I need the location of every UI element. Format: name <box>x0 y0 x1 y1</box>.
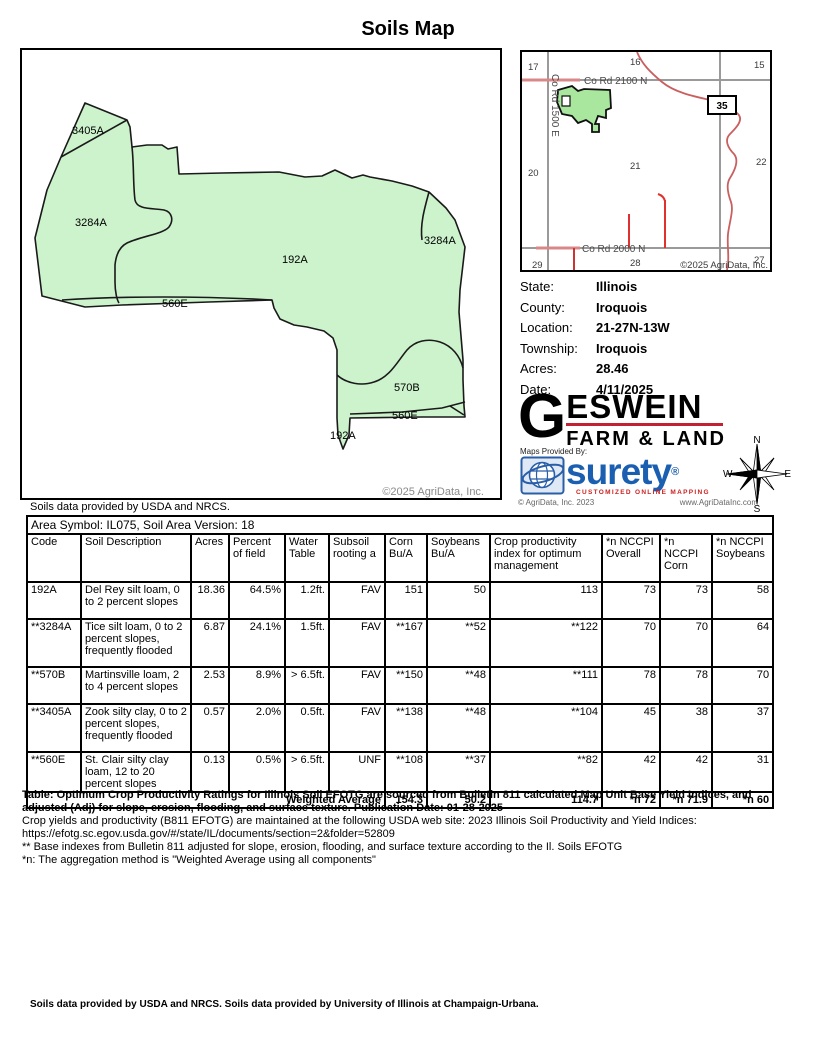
map-label-3405A: 3405A <box>72 125 104 137</box>
agridata-copyright: © AgriData, Inc. 2023 <box>518 498 594 507</box>
table-row: **3405A Zook silty clay, 0 to 2 percent … <box>27 704 773 752</box>
col-header-nccpi-soybeans: *n NCCPI Soybeans <box>712 534 773 582</box>
map-label-192A: 192A <box>282 254 308 266</box>
compass-rose: N S E W <box>722 436 792 517</box>
soils-table-container: Area Symbol: IL075, Soil Area Version: 1… <box>26 515 774 809</box>
info-value: Iroquois <box>596 298 647 319</box>
cell-water: 0.5ft. <box>285 704 329 752</box>
col-header-nccpi-corn: *n NCCPI Corn <box>660 534 712 582</box>
map-label-3284A-left: 3284A <box>75 217 107 229</box>
footnote-base-indexes: ** Base indexes from Bulletin 811 adjust… <box>22 841 796 854</box>
footnote-crop-yields: Crop yields and productivity (B811 EFOTG… <box>22 815 796 828</box>
cell-nccpi-overall: 78 <box>602 667 660 704</box>
inset-copyright: ©2025 AgriData, Inc. <box>680 260 768 270</box>
section-16: 16 <box>630 57 641 68</box>
cell-acres: 2.53 <box>191 667 229 704</box>
cell-desc: Martinsville loam, 2 to 4 percent slopes <box>81 667 191 704</box>
cell-soy: **37 <box>427 752 490 792</box>
section-20: 20 <box>528 168 539 179</box>
info-label: State: <box>520 277 596 298</box>
col-header-soybeans: Soybeans Bu/A <box>427 534 490 582</box>
footnote-source: Table: Optimum Crop Productivity Ratings… <box>22 789 796 815</box>
col-header-nccpi-overall: *n NCCPI Overall <box>602 534 660 582</box>
info-row-state: State: Illinois <box>520 277 770 298</box>
info-value: 21-27N-13W <box>596 318 670 339</box>
cell-subsoil: FAV <box>329 619 385 667</box>
cell-code: **3405A <box>27 704 81 752</box>
cell-acres: 0.13 <box>191 752 229 792</box>
map-label-570B: 570B <box>394 382 420 394</box>
cell-nccpi-soy: 70 <box>712 667 773 704</box>
location-inset-map: 17 16 15 20 21 22 29 28 27 Co Rd 2100 N … <box>520 50 772 272</box>
cell-water: > 6.5ft. <box>285 752 329 792</box>
red-road-middle-stubs <box>629 194 665 248</box>
section-28: 28 <box>630 258 641 269</box>
soils-map-report-page: Soils Map 3405A 3284A 192A 3284A 560E 57… <box>0 0 816 1056</box>
footnote-url: https://efotg.sc.egov.usda.gov/#/state/I… <box>22 828 796 841</box>
map-attribution: Soils data provided by USDA and NRCS. <box>30 501 230 513</box>
page-title: Soils Map <box>0 18 816 41</box>
footnote-aggregation: *n: The aggregation method is "Weighted … <box>22 854 796 867</box>
info-row-location: Location: 21-27N-13W <box>520 318 770 339</box>
cell-nccpi-soy: 64 <box>712 619 773 667</box>
cell-cpi: 113 <box>490 582 602 619</box>
cell-cpi: **104 <box>490 704 602 752</box>
map-label-560E-left: 560E <box>162 298 188 310</box>
cell-acres: 6.87 <box>191 619 229 667</box>
table-row: 192A Del Rey silt loam, 0 to 2 percent s… <box>27 582 773 619</box>
map-label-3284A-right: 3284A <box>424 235 456 247</box>
col-header-crop-productivity: Crop productivity index for optimum mana… <box>490 534 602 582</box>
col-header-subsoil-rooting: Subsoil rooting a <box>329 534 385 582</box>
cell-soy: **52 <box>427 619 490 667</box>
surety-wordmark: surety® <box>566 456 678 488</box>
geswein-logo-name: ESWEIN <box>566 392 726 422</box>
road-label-bottom: Co Rd 2000 N <box>582 244 645 255</box>
cell-nccpi-corn: 78 <box>660 667 712 704</box>
cell-nccpi-overall: 42 <box>602 752 660 792</box>
cell-subsoil: FAV <box>329 667 385 704</box>
inset-map-drawing: 17 16 15 20 21 22 29 28 27 Co Rd 2100 N … <box>522 52 770 270</box>
road-label-left: Co Rd 1500 E <box>549 74 560 137</box>
map-copyright: ©2025 AgriData, Inc. <box>382 486 484 498</box>
col-header-water-table: Water Table <box>285 534 329 582</box>
cell-cpi: **111 <box>490 667 602 704</box>
footnotes-block: Table: Optimum Crop Productivity Ratings… <box>22 789 796 867</box>
cell-nccpi-corn: 42 <box>660 752 712 792</box>
cell-nccpi-overall: 45 <box>602 704 660 752</box>
compass-s: S <box>754 504 761 512</box>
cell-subsoil: FAV <box>329 704 385 752</box>
cell-cpi: **82 <box>490 752 602 792</box>
road-label-top: Co Rd 2100 N <box>584 76 647 87</box>
cell-corn: **150 <box>385 667 427 704</box>
cell-nccpi-overall: 70 <box>602 619 660 667</box>
section-22: 22 <box>756 157 767 168</box>
cell-code: **570B <box>27 667 81 704</box>
cell-water: 1.2ft. <box>285 582 329 619</box>
section-15: 15 <box>754 60 765 71</box>
cell-desc: St. Clair silty clay loam, 12 to 20 perc… <box>81 752 191 792</box>
col-header-corn: Corn Bu/A <box>385 534 427 582</box>
cell-nccpi-soy: 31 <box>712 752 773 792</box>
registered-mark: ® <box>671 466 678 478</box>
cell-pct: 2.0% <box>229 704 285 752</box>
compass-e: E <box>784 469 791 480</box>
cell-nccpi-soy: 58 <box>712 582 773 619</box>
table-header-row: Code Soil Description Acres Percent of f… <box>27 534 773 582</box>
cell-nccpi-corn: 38 <box>660 704 712 752</box>
cell-corn: 151 <box>385 582 427 619</box>
map-label-560E-right: 560E <box>392 410 418 422</box>
section-21: 21 <box>630 161 641 172</box>
cell-code: 192A <box>27 582 81 619</box>
cell-corn: **138 <box>385 704 427 752</box>
info-value: 28.46 <box>596 359 629 380</box>
surety-tagline: CUSTOMIZED ONLINE MAPPING <box>576 489 710 496</box>
cell-pct: 24.1% <box>229 619 285 667</box>
info-label: County: <box>520 298 596 319</box>
cell-corn: **167 <box>385 619 427 667</box>
geswein-logo-g: G <box>518 392 564 442</box>
inset-parcel <box>557 86 611 132</box>
cell-subsoil: UNF <box>329 752 385 792</box>
cell-water: > 6.5ft. <box>285 667 329 704</box>
soils-table: Area Symbol: IL075, Soil Area Version: 1… <box>26 515 774 809</box>
col-header-percent-of-field: Percent of field <box>229 534 285 582</box>
cell-code: **3284A <box>27 619 81 667</box>
col-header-soil-description: Soil Description <box>81 534 191 582</box>
area-symbol-text: Area Symbol: IL075, Soil Area Version: 1… <box>27 516 773 534</box>
geswein-logo-subtitle: FARM & LAND <box>566 428 726 451</box>
area-symbol-row: Area Symbol: IL075, Soil Area Version: 1… <box>27 516 773 534</box>
info-label: Location: <box>520 318 596 339</box>
geswein-logo-right: ESWEIN FARM & LAND <box>566 392 726 451</box>
soils-map-drawing: 3405A 3284A 192A 3284A 560E 570B 560E 19… <box>22 50 500 498</box>
compass-n: N <box>753 436 760 446</box>
cell-cpi: **122 <box>490 619 602 667</box>
section-29: 29 <box>532 260 543 270</box>
cell-desc: Tice silt loam, 0 to 2 percent slopes, f… <box>81 619 191 667</box>
cell-nccpi-corn: 73 <box>660 582 712 619</box>
map-label-192A-finger: 192A <box>330 430 356 442</box>
cell-pct: 64.5% <box>229 582 285 619</box>
cell-subsoil: FAV <box>329 582 385 619</box>
info-row-township: Township: Iroquois <box>520 339 770 360</box>
geswein-logo: G ESWEIN FARM & LAND <box>518 392 726 451</box>
cell-pct: 0.5% <box>229 752 285 792</box>
cell-nccpi-overall: 73 <box>602 582 660 619</box>
highway-badge-number: 35 <box>716 101 728 112</box>
info-row-acres: Acres: 28.46 <box>520 359 770 380</box>
info-value: Illinois <box>596 277 637 298</box>
section-17: 17 <box>528 62 539 73</box>
page-footer: Soils data provided by USDA and NRCS. So… <box>30 999 539 1010</box>
col-header-acres: Acres <box>191 534 229 582</box>
surety-word: surety <box>566 451 671 492</box>
cell-desc: Zook silty clay, 0 to 2 percent slopes, … <box>81 704 191 752</box>
red-road-curvy <box>637 52 740 270</box>
parcel-polygon <box>35 103 465 449</box>
cell-water: 1.5ft. <box>285 619 329 667</box>
info-label: Acres: <box>520 359 596 380</box>
soils-map-panel: 3405A 3284A 192A 3284A 560E 570B 560E 19… <box>20 48 502 500</box>
cell-nccpi-corn: 70 <box>660 619 712 667</box>
globe-icon <box>520 456 566 496</box>
info-row-county: County: Iroquois <box>520 298 770 319</box>
cell-acres: 0.57 <box>191 704 229 752</box>
table-row: **570B Martinsville loam, 2 to 4 percent… <box>27 667 773 704</box>
cell-acres: 18.36 <box>191 582 229 619</box>
col-header-code: Code <box>27 534 81 582</box>
inset-parcel-notch <box>562 96 570 106</box>
cell-soy: **48 <box>427 667 490 704</box>
cell-corn: **108 <box>385 752 427 792</box>
info-label: Township: <box>520 339 596 360</box>
cell-soy: 50 <box>427 582 490 619</box>
cell-nccpi-soy: 37 <box>712 704 773 752</box>
info-value: Iroquois <box>596 339 647 360</box>
table-row: **560E St. Clair silty clay loam, 12 to … <box>27 752 773 792</box>
cell-code: **560E <box>27 752 81 792</box>
table-row: **3284A Tice silt loam, 0 to 2 percent s… <box>27 619 773 667</box>
cell-pct: 8.9% <box>229 667 285 704</box>
compass-w: W <box>723 469 733 480</box>
cell-soy: **48 <box>427 704 490 752</box>
compass-rose-icon: N S E W <box>722 436 792 512</box>
cell-desc: Del Rey silt loam, 0 to 2 percent slopes <box>81 582 191 619</box>
